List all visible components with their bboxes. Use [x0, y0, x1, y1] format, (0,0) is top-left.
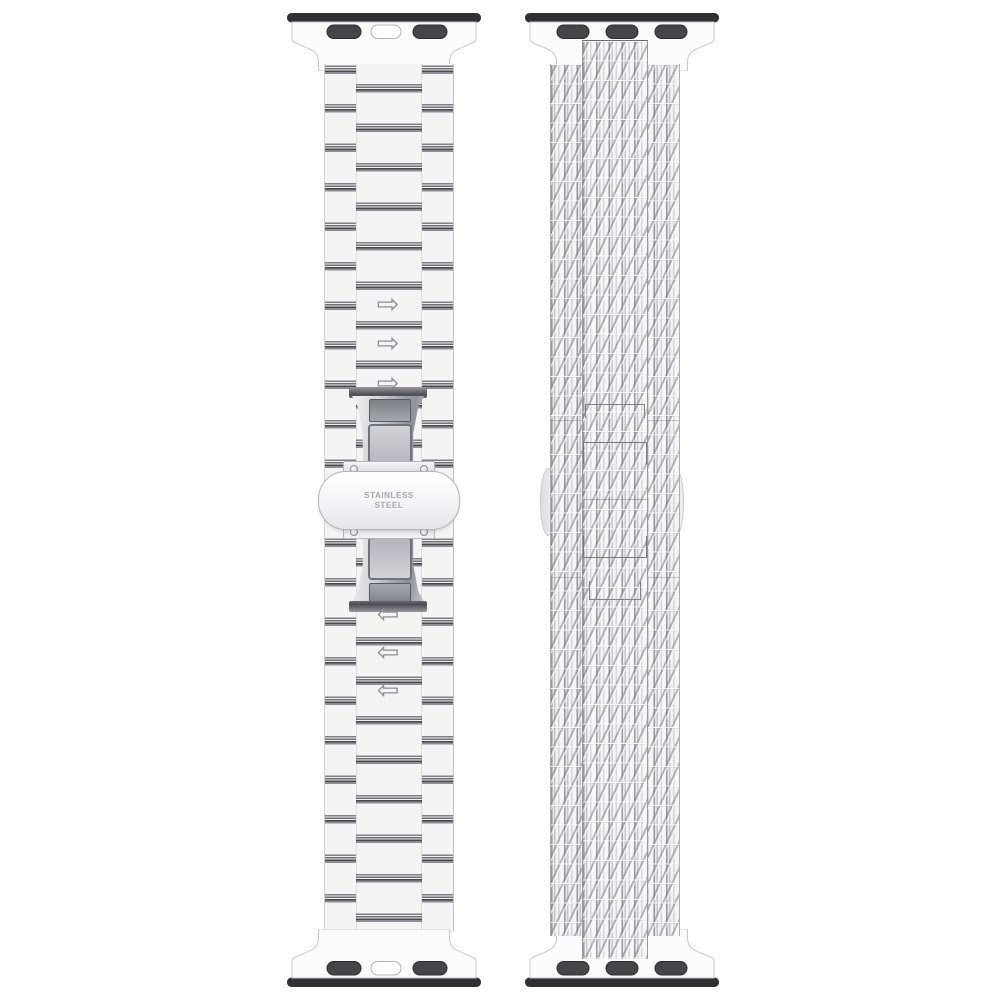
- lug-release-button-icon: [371, 25, 401, 39]
- buckle-outline: [583, 442, 647, 464]
- product-image-canvas: ⇨ ⇨ ⇨ STAINLESS STEEL ⇦ ⇦ ⇦: [0, 0, 1000, 1000]
- lug-slot-icon: [327, 962, 361, 976]
- clasp-cover-plate: STAINLESS STEEL: [318, 471, 460, 530]
- mesh-center-strip: [582, 40, 648, 959]
- slide-arrow-right-icon: ⇨: [358, 327, 418, 361]
- watch-lug-connector-bottom-left: [286, 929, 482, 987]
- lug-slot-icon: [413, 962, 447, 976]
- lug-slot-icon: [606, 25, 638, 39]
- clasp-engraving-line2: STEEL: [375, 501, 404, 511]
- lug-release-button-icon: [371, 962, 401, 976]
- clasp-cutout-large-bottom: [368, 537, 412, 580]
- clasp-engraving-line1: STAINLESS: [364, 491, 414, 501]
- slide-arrow-right-icon: ⇨: [358, 288, 418, 322]
- lug-slot-icon: [327, 25, 361, 39]
- watch-lug-connector-top-left: [286, 13, 482, 71]
- lug-slot-icon: [655, 962, 687, 976]
- slide-arrow-left-icon: ⇦: [358, 598, 418, 632]
- buckle-outline-midline: [583, 499, 647, 500]
- slide-arrow-left-icon: ⇦: [358, 674, 418, 708]
- mesh-strap-body: [550, 64, 680, 936]
- lug-slot-icon: [557, 25, 589, 39]
- slide-arrow-left-icon: ⇦: [358, 636, 418, 670]
- lug-slot-icon: [557, 962, 589, 976]
- buckle-outline: [583, 536, 647, 558]
- lug-slot-icon: [606, 962, 638, 976]
- buckle-outline: [589, 581, 641, 600]
- clasp-cutout-small-top: [369, 399, 411, 422]
- lug-slot-icon: [413, 25, 447, 39]
- buckle-outline: [585, 404, 645, 418]
- lug-slot-icon: [655, 25, 687, 39]
